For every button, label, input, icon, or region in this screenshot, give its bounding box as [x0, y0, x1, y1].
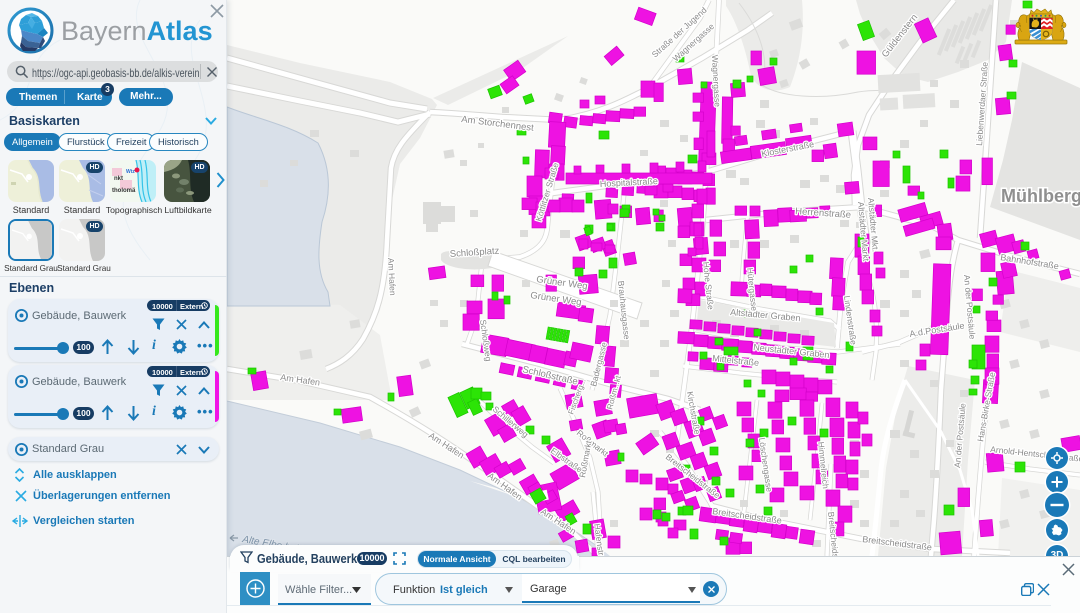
svg-text:Am Hafen: Am Hafen: [386, 258, 398, 297]
svg-text:Wtz: Wtz: [126, 169, 135, 175]
svg-text:Mühlberg: Mühlberg: [1001, 186, 1080, 206]
svg-text:tholomä: tholomä: [112, 188, 136, 194]
svg-text:nkt: nkt: [114, 176, 123, 182]
